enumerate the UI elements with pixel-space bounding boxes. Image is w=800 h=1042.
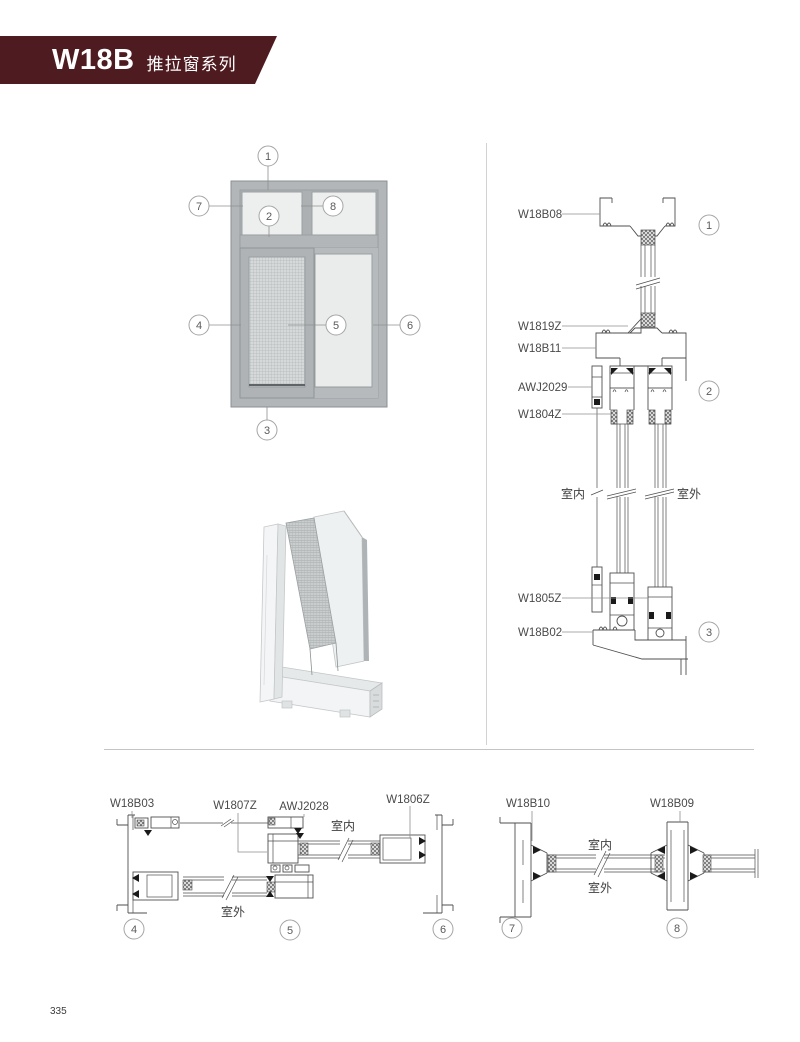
svg-text:4: 4 — [131, 924, 137, 936]
bottom-frame-profile — [593, 627, 688, 675]
outdoor-label: 室外 — [588, 880, 612, 895]
horizontal-divider — [104, 749, 754, 750]
vertical-divider — [486, 143, 487, 745]
label-w1807z: W1807Z — [213, 800, 256, 812]
page-number: 335 — [50, 1006, 67, 1017]
svg-text:2: 2 — [266, 211, 272, 223]
svg-text:1: 1 — [265, 151, 271, 163]
svg-text:3: 3 — [706, 627, 712, 639]
outdoor-sash — [132, 872, 267, 900]
series-name: 推拉窗系列 — [147, 50, 237, 75]
transom-profile — [596, 328, 686, 381]
title-banner: W18B 推拉窗系列 — [0, 36, 280, 84]
horizontal-section-right: W18B10 W18B09 室内 室外 7 8 — [485, 785, 800, 950]
jamb-3d — [260, 524, 286, 702]
outer-sash-section — [645, 366, 674, 640]
isometric-profile-view — [240, 495, 390, 725]
window-frame — [231, 181, 387, 407]
svg-text:5: 5 — [287, 925, 293, 937]
bottom-rail-3d — [270, 667, 382, 717]
svg-text:7: 7 — [509, 923, 515, 935]
vertical-section-drawing: W18B08 W1819Z W18B11 AWJ2029 W1804Z W180… — [490, 185, 780, 700]
indoor-label: 室内 — [561, 486, 585, 501]
svg-text:6: 6 — [440, 924, 446, 936]
label-awj2028: AWJ2028 — [279, 801, 328, 813]
vertical-section-callouts: 1 2 3 — [699, 215, 719, 642]
outdoor-label: 室外 — [677, 486, 701, 501]
indoor-glazing — [298, 838, 380, 862]
bottom-left-callouts: 4 5 6 — [124, 919, 453, 940]
right-sash-stile — [380, 835, 426, 863]
label-w18b03: W18B03 — [110, 798, 154, 810]
right-glazing — [703, 849, 758, 878]
bottom-right-callouts: 7 8 — [502, 918, 687, 938]
label-w18b02: W18B02 — [518, 627, 562, 639]
glass-wedge-w1819z — [628, 319, 641, 333]
fixed-glass-section — [628, 245, 660, 333]
svg-text:3: 3 — [264, 425, 270, 437]
label-w18b10: W18B10 — [506, 798, 550, 810]
label-w1805z: W1805Z — [518, 593, 561, 605]
inner-sash-section — [607, 366, 636, 630]
label-awj2029: AWJ2029 — [518, 382, 567, 394]
catalog-page: W18B 推拉窗系列 — [0, 0, 800, 1042]
screen-row — [135, 817, 303, 836]
label-w1819z: W1819Z — [518, 321, 561, 333]
jamb-sash-corner — [531, 845, 547, 881]
label-w18b09: W18B09 — [650, 798, 694, 810]
screen-mesh — [249, 257, 305, 387]
fixed-pane-right — [312, 192, 376, 235]
label-w18b08: W18B08 — [518, 209, 562, 221]
series-code: W18B — [52, 44, 135, 77]
svg-text:1: 1 — [706, 220, 712, 232]
indoor-label: 室内 — [331, 818, 355, 833]
left-glazing — [547, 851, 665, 877]
label-w1804z: W1804Z — [518, 409, 561, 421]
label-w1806z: W1806Z — [386, 794, 429, 806]
label-w18b11: W18B11 — [518, 343, 561, 355]
indoor-label: 室内 — [588, 837, 612, 852]
svg-text:2: 2 — [706, 386, 712, 398]
svg-text:7: 7 — [196, 201, 202, 213]
screen-section — [591, 366, 603, 612]
horizontal-section-left: W18B03 W1807Z AWJ2028 W1806Z 室内 室外 4 5 6 — [95, 785, 475, 950]
svg-text:8: 8 — [674, 923, 680, 935]
transom-bar — [240, 235, 378, 248]
right-jamb-profile — [423, 815, 453, 913]
svg-text:8: 8 — [330, 201, 336, 213]
vertical-section-labels: W18B08 W1819Z W18B11 AWJ2029 W1804Z W180… — [518, 209, 701, 639]
outdoor-label: 室外 — [221, 904, 245, 919]
top-frame-profile — [600, 198, 675, 245]
svg-text:6: 6 — [407, 320, 413, 332]
elevation-drawing: 1 7 2 8 4 5 6 3 — [160, 140, 430, 450]
jamb-profile — [500, 817, 531, 923]
svg-text:5: 5 — [333, 320, 339, 332]
svg-text:4: 4 — [196, 320, 202, 332]
